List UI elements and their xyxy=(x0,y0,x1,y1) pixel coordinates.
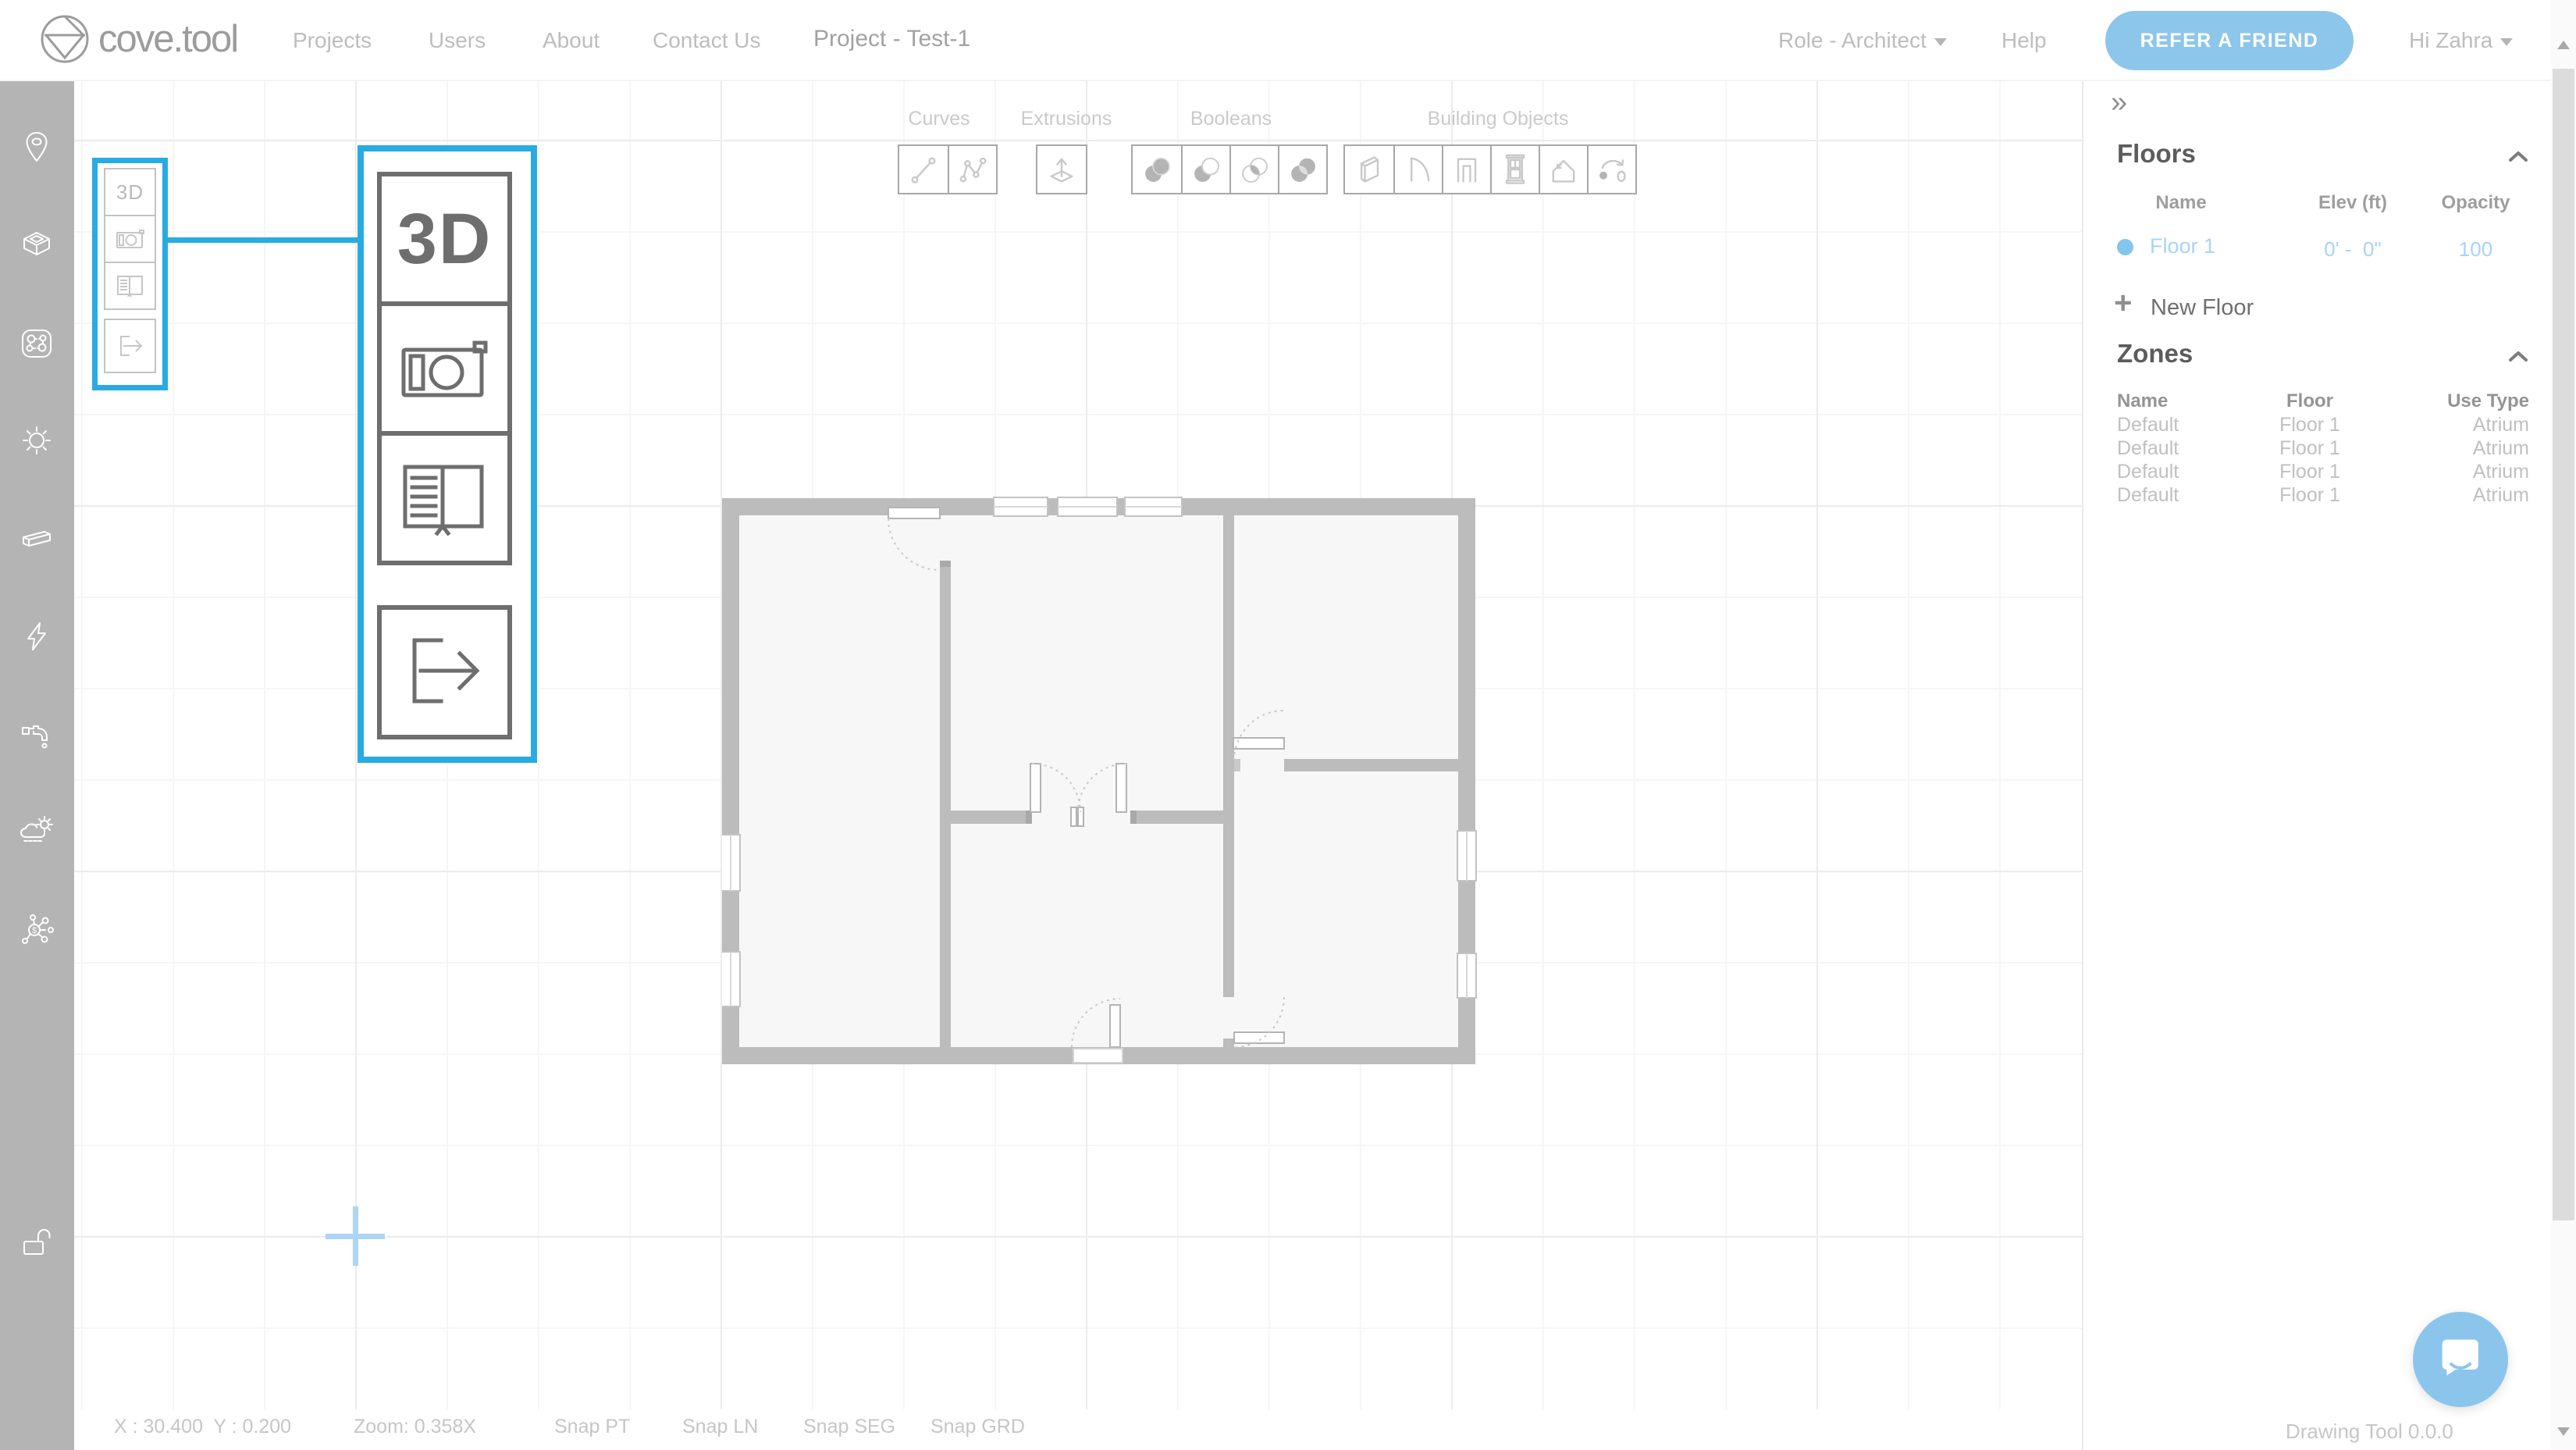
role-label: Role - Architect xyxy=(1778,28,1927,52)
toolbar-group-curves xyxy=(898,144,998,194)
snap-grd-toggle[interactable]: Snap GRD xyxy=(930,1416,1025,1438)
wall-panel-icon xyxy=(1352,152,1386,187)
floors-section-title: Floors xyxy=(2117,139,2196,169)
extrude-tool-button[interactable] xyxy=(1037,146,1086,193)
sidebar-item-water[interactable] xyxy=(18,716,55,754)
boolean-intersection-button[interactable] xyxy=(1229,146,1278,193)
floor-opacity-value[interactable]: 100 xyxy=(2419,237,2532,262)
zones-header-use-type: Use Type xyxy=(2389,390,2529,412)
camera-icon xyxy=(394,330,496,408)
toolbar-group-label-booleans: Booleans xyxy=(1190,108,1272,130)
boolean-union-icon xyxy=(1140,152,1174,187)
floors-header-opacity: Opacity xyxy=(2419,192,2532,214)
nav-link-about[interactable]: About xyxy=(543,28,600,53)
scrollbar-down-arrow[interactable] xyxy=(2557,1427,2570,1436)
new-floor-button[interactable]: New Floor xyxy=(2151,295,2254,321)
nav-link-users[interactable]: Users xyxy=(429,28,486,53)
zones-collapse-button[interactable] xyxy=(2508,350,2528,366)
palette-export-button[interactable] xyxy=(377,605,512,739)
boolean-union-button[interactable] xyxy=(1133,146,1181,193)
sidebar-item-lock[interactable] xyxy=(18,1223,55,1260)
sidebar-item-facade[interactable] xyxy=(18,520,55,558)
weather-cloud-sun-icon xyxy=(18,814,55,852)
massing-nodes-icon xyxy=(18,325,55,362)
chevron-up-icon xyxy=(2508,350,2528,362)
sidebar-item-cost[interactable]: $ xyxy=(18,911,55,949)
nav-link-projects[interactable]: Projects xyxy=(293,28,372,53)
zone-row-name[interactable]: Default xyxy=(2117,461,2179,483)
polyline-icon xyxy=(955,152,990,187)
palette-3d-view-button[interactable]: 3D xyxy=(377,172,512,306)
palette-connector-line xyxy=(168,237,358,243)
tool-palette: 3D xyxy=(358,145,537,763)
help-link[interactable]: Help xyxy=(2001,28,2047,53)
snap-ln-toggle[interactable]: Snap LN xyxy=(682,1416,758,1438)
sidebar-item-daylight[interactable] xyxy=(18,422,55,459)
role-dropdown[interactable]: Role - Architect xyxy=(1778,28,1947,53)
lightning-bolt-icon xyxy=(18,618,55,655)
floor-name-value[interactable]: Floor 1 xyxy=(2150,234,2215,258)
zones-header-name: Name xyxy=(2117,390,2168,412)
window-icon xyxy=(1498,152,1532,187)
floor-color-dot[interactable] xyxy=(2117,239,2133,255)
logo-text: cove.tool xyxy=(98,17,237,61)
roof-icon xyxy=(1546,152,1581,187)
boolean-combine-icon xyxy=(1286,152,1320,187)
padlock-open-icon xyxy=(18,1223,55,1260)
open-book-icon xyxy=(114,273,147,299)
svg-text:$: $ xyxy=(32,926,37,935)
boolean-difference-button[interactable] xyxy=(1181,146,1229,193)
logo[interactable]: cove.tool xyxy=(39,14,237,64)
sidebar-item-location[interactable] xyxy=(18,129,55,166)
floors-collapse-button[interactable] xyxy=(2508,150,2528,166)
user-greeting: Hi Zahra xyxy=(2409,28,2492,52)
crosshair-cursor-v xyxy=(353,1206,358,1266)
window-tool-button[interactable] xyxy=(1490,146,1539,193)
zone-row-floor[interactable]: Floor 1 xyxy=(2251,414,2368,436)
floors-header-elev: Elev (ft) xyxy=(2298,192,2407,214)
zone-row-use-type[interactable]: Atrium xyxy=(2389,484,2529,507)
project-title[interactable]: Project - Test-1 xyxy=(813,26,970,52)
boolean-combine-button[interactable] xyxy=(1278,146,1326,193)
wall-panel-tool-button[interactable] xyxy=(1345,146,1393,193)
chevron-down-icon xyxy=(2500,38,2513,46)
zone-row-floor[interactable]: Floor 1 xyxy=(2251,437,2368,460)
zone-row-name[interactable]: Default xyxy=(2117,414,2179,436)
sidebar-item-energy[interactable] xyxy=(18,618,55,655)
chevron-down-icon xyxy=(1934,38,1947,46)
toolbar-group-building-objects xyxy=(1343,144,1637,194)
mini-export-button[interactable] xyxy=(104,319,156,373)
toolbar-group-label-curves: Curves xyxy=(908,108,970,130)
app-version: Drawing Tool 0.0.0 xyxy=(2286,1420,2453,1444)
3d-view-label: 3D xyxy=(116,180,144,205)
floors-header-name: Name xyxy=(2134,192,2228,214)
mini-library-button[interactable] xyxy=(104,262,156,310)
floor-plan[interactable] xyxy=(722,492,1479,1070)
sidebar-item-3d-model[interactable] xyxy=(18,225,55,262)
scrollbar-up-arrow[interactable] xyxy=(2557,41,2570,49)
page-scrollbar[interactable] xyxy=(2551,0,2576,1450)
extrude-icon xyxy=(1044,152,1079,187)
sun-icon xyxy=(18,422,55,459)
zone-row-use-type[interactable]: Atrium xyxy=(2389,437,2529,460)
zone-row-floor[interactable]: Floor 1 xyxy=(2251,461,2368,483)
panel-collapse-button[interactable]: » xyxy=(2111,86,2127,119)
user-menu[interactable]: Hi Zahra xyxy=(2409,28,2513,53)
curved-wall-icon xyxy=(1401,152,1436,187)
line-icon xyxy=(906,152,941,187)
mini-tool-palette: 3D xyxy=(92,158,168,390)
floor-elev-value[interactable]: 0' - 0" xyxy=(2298,237,2407,262)
zones-header-floor: Floor xyxy=(2251,390,2368,412)
sidebar-item-massing[interactable] xyxy=(18,325,55,362)
nav-link-contact-us[interactable]: Contact Us xyxy=(653,28,761,53)
floor-plan-rooms xyxy=(739,515,1458,1047)
polyline-tool-button[interactable] xyxy=(948,146,996,193)
boolean-difference-icon xyxy=(1189,152,1223,187)
3d-view-label: 3D xyxy=(397,198,493,280)
cube-3d-icon xyxy=(18,225,55,262)
zone-row-name[interactable]: Default xyxy=(2117,437,2179,460)
cove-tool-app: Curves Extrusions Booleans Building Obje… xyxy=(0,0,2576,1450)
zone-row-name[interactable]: Default xyxy=(2117,484,2179,507)
door-frame-icon xyxy=(1450,152,1484,187)
zones-section-title: Zones xyxy=(2117,339,2193,369)
plus-icon: + xyxy=(2114,286,2132,321)
open-book-icon xyxy=(394,458,496,539)
zoom-level: Zoom: 0.358X xyxy=(354,1416,476,1438)
snap-seg-toggle[interactable]: Snap SEG xyxy=(803,1416,895,1438)
roof-tool-button[interactable] xyxy=(1539,146,1587,193)
cove-tool-logo-icon xyxy=(39,14,91,64)
zone-row-use-type[interactable]: Atrium xyxy=(2389,414,2529,436)
toolbar-group-booleans xyxy=(1131,144,1328,194)
curved-wall-tool-button[interactable] xyxy=(1393,146,1442,193)
toolbar-group-label-building-objects: Building Objects xyxy=(1428,108,1569,130)
cursor-coordinates: X : 30.400 Y : 0.200 xyxy=(114,1416,291,1438)
toolbar-group-extrusions xyxy=(1036,144,1087,194)
top-navbar: cove.tool Projects Users About Contact U… xyxy=(0,0,2576,81)
door-tool-button[interactable] xyxy=(1442,146,1490,193)
boolean-intersection-icon xyxy=(1237,152,1272,187)
network-dollar-icon: $ xyxy=(18,911,55,949)
left-sidebar: $ xyxy=(0,81,74,1450)
zone-row-floor[interactable]: Floor 1 xyxy=(2251,484,2368,507)
wall-panel-icon xyxy=(18,520,55,558)
zone-row-use-type[interactable]: Atrium xyxy=(2389,461,2529,483)
export-arrow-icon xyxy=(394,629,496,715)
toolbar-group-label-extrusions: Extrusions xyxy=(1021,108,1112,130)
scrollbar-thumb[interactable] xyxy=(2553,69,2574,1220)
refer-a-friend-button[interactable]: REFER A FRIEND xyxy=(2105,11,2354,70)
water-faucet-icon xyxy=(18,716,55,754)
chevron-up-icon xyxy=(2508,150,2528,162)
status-bar: X : 30.400 Y : 0.200 Zoom: 0.358X Snap P… xyxy=(74,1409,2083,1450)
camera-icon xyxy=(114,226,147,252)
location-pin-icon xyxy=(18,129,55,166)
chat-bubble-icon xyxy=(2435,1334,2485,1384)
export-arrow-icon xyxy=(114,332,147,360)
snap-pt-toggle[interactable]: Snap PT xyxy=(554,1416,630,1438)
properties-panel: » Floors Name Elev (ft) Opacity Floor 1 … xyxy=(2082,81,2551,1450)
mini-snapshot-button[interactable] xyxy=(104,215,156,263)
mini-3d-view-button[interactable]: 3D xyxy=(104,168,156,216)
line-tool-button[interactable] xyxy=(899,146,948,193)
sidebar-item-weather[interactable] xyxy=(18,814,55,852)
rotate-copy-icon xyxy=(1595,152,1629,187)
palette-snapshot-button[interactable] xyxy=(377,301,512,436)
rotate-copy-tool-button[interactable] xyxy=(1587,146,1635,193)
palette-library-button[interactable] xyxy=(377,431,512,565)
chat-support-button[interactable] xyxy=(2413,1312,2508,1407)
